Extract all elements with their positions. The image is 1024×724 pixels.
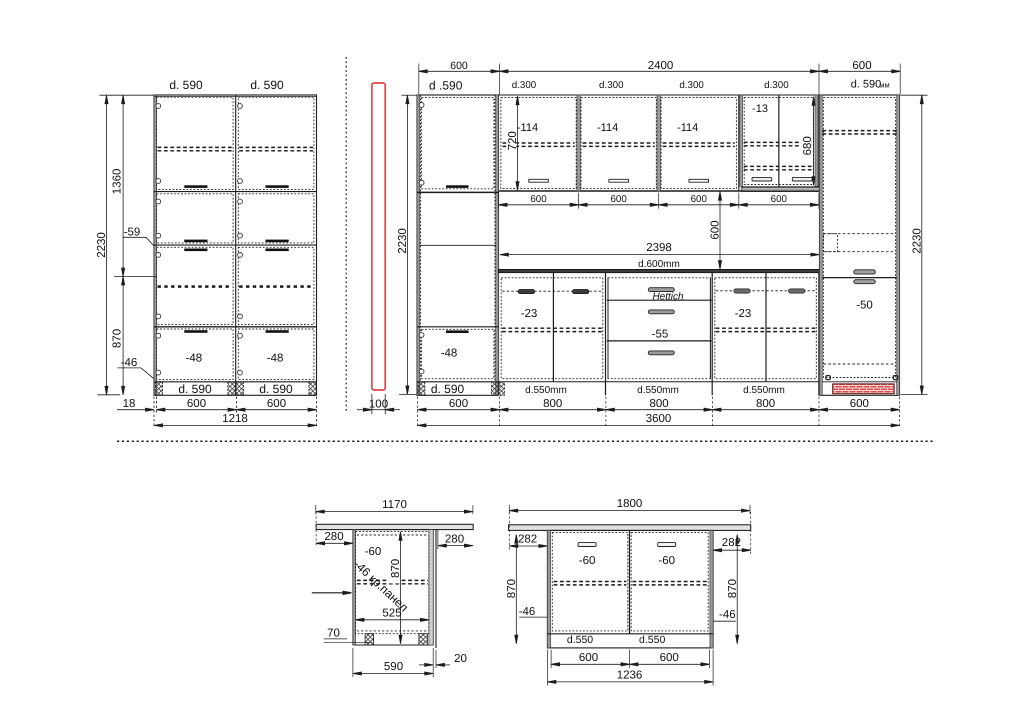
svg-text:2230: 2230: [911, 228, 923, 254]
svg-text:600: 600: [449, 398, 468, 410]
svg-text:d.300: d.300: [599, 80, 624, 91]
svg-text:d.550mm: d.550mm: [525, 385, 567, 396]
svg-text:600: 600: [660, 652, 679, 664]
svg-text:2400: 2400: [648, 60, 674, 72]
svg-text:d.550: d.550: [567, 634, 593, 646]
svg-text:2398: 2398: [646, 242, 672, 254]
svg-text:870: 870: [390, 559, 402, 578]
svg-text:1360: 1360: [111, 169, 123, 195]
svg-text:d.550: d.550: [639, 634, 665, 646]
svg-text:1236: 1236: [617, 670, 643, 682]
svg-text:600: 600: [530, 194, 547, 205]
svg-text:600: 600: [579, 652, 598, 664]
svg-text:d. 590: d. 590: [431, 382, 465, 396]
svg-text:-46: -46: [519, 606, 536, 618]
svg-text:-50: -50: [856, 300, 873, 312]
svg-text:100: 100: [369, 399, 388, 411]
svg-text:800: 800: [650, 398, 669, 410]
svg-text:870: 870: [506, 579, 518, 598]
svg-text:600: 600: [691, 194, 708, 205]
svg-text:-48: -48: [186, 352, 203, 364]
svg-text:2230: 2230: [397, 228, 409, 254]
svg-text:-59: -59: [124, 227, 141, 239]
svg-text:600: 600: [710, 220, 722, 239]
svg-text:525: 525: [382, 607, 401, 619]
svg-text:600: 600: [267, 398, 286, 410]
svg-text:720: 720: [507, 131, 519, 150]
svg-text:-23: -23: [521, 308, 538, 320]
svg-text:мм: мм: [879, 81, 889, 90]
svg-text:d. 590: d. 590: [259, 382, 293, 396]
svg-text:d. 590: d. 590: [250, 78, 284, 92]
svg-text:1218: 1218: [222, 413, 248, 425]
svg-text:-114: -114: [677, 122, 698, 134]
svg-text:600: 600: [610, 194, 627, 205]
svg-text:1170: 1170: [382, 499, 407, 511]
svg-text:-55: -55: [652, 329, 669, 341]
svg-text:3600: 3600: [646, 413, 672, 425]
svg-text:600: 600: [852, 60, 871, 72]
svg-text:600: 600: [850, 398, 869, 410]
svg-text:-60: -60: [658, 555, 675, 567]
svg-text:70: 70: [327, 628, 340, 640]
svg-text:282: 282: [518, 534, 537, 546]
svg-text:20: 20: [454, 653, 467, 665]
svg-text:280: 280: [445, 533, 464, 545]
svg-text:d .590: d .590: [429, 78, 463, 92]
svg-text:-13: -13: [752, 103, 768, 115]
svg-text:d. 590: d. 590: [169, 78, 203, 92]
svg-text:d. 590: d. 590: [851, 79, 882, 91]
svg-text:-114: -114: [597, 122, 618, 134]
svg-text:-60: -60: [579, 555, 596, 567]
svg-text:Hettich: Hettich: [652, 291, 684, 302]
svg-text:-46: -46: [719, 609, 736, 621]
svg-text:-48: -48: [441, 347, 458, 359]
svg-text:d. 590: d. 590: [178, 382, 212, 396]
svg-text:-114: -114: [517, 122, 538, 134]
svg-text:600: 600: [771, 194, 788, 205]
svg-text:-23: -23: [735, 308, 752, 320]
svg-text:d.300: d.300: [679, 80, 704, 91]
svg-text:d.550mm: d.550mm: [637, 385, 679, 396]
svg-text:18: 18: [123, 398, 136, 410]
svg-text:1800: 1800: [617, 498, 643, 510]
svg-text:d.600mm: d.600mm: [638, 259, 680, 270]
svg-text:600: 600: [450, 60, 468, 72]
svg-text:800: 800: [756, 398, 775, 410]
svg-text:680: 680: [802, 136, 814, 155]
svg-text:870: 870: [727, 579, 739, 598]
svg-text:800: 800: [543, 398, 562, 410]
svg-text:-48: -48: [267, 352, 284, 364]
svg-text:870: 870: [111, 329, 123, 348]
svg-text:d.300: d.300: [764, 80, 789, 91]
svg-text:280: 280: [324, 531, 343, 543]
svg-text:-60: -60: [365, 546, 382, 558]
svg-text:590: 590: [384, 661, 403, 673]
svg-text:2230: 2230: [96, 232, 108, 258]
svg-text:d.550mm: d.550mm: [743, 385, 785, 396]
svg-text:600: 600: [187, 398, 206, 410]
svg-text:-46: -46: [121, 357, 138, 369]
svg-text:d.300: d.300: [512, 80, 537, 91]
